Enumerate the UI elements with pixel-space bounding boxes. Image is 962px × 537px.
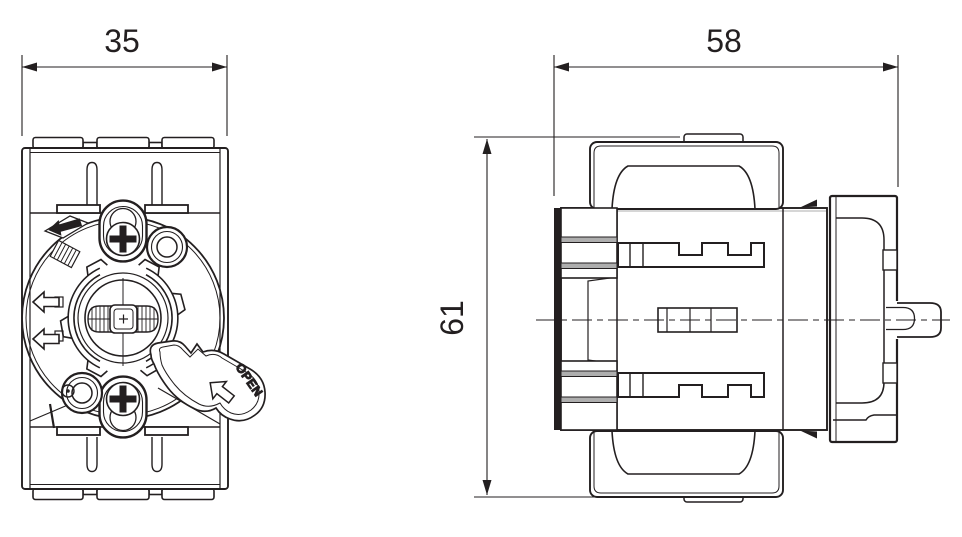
side-width-value: 58 xyxy=(706,23,742,59)
front-view: OPEN 35 xyxy=(22,23,265,500)
dimension-arrow-icon xyxy=(483,480,492,495)
technical-drawing-page: OPEN 35 xyxy=(0,0,962,537)
mount-hole-top-right xyxy=(147,227,187,267)
terminal-block-bottom xyxy=(561,361,617,430)
front-width-value: 35 xyxy=(104,23,140,59)
mount-hole-bottom-left xyxy=(62,373,102,413)
side-bottom-cover xyxy=(590,431,783,502)
dimension-front-width: 35 xyxy=(22,23,227,136)
dimension-arrow-icon xyxy=(554,63,569,72)
terminal-block-top xyxy=(561,208,617,278)
dimension-arrow-icon xyxy=(483,139,492,154)
phillips-screw-top xyxy=(100,201,147,262)
drawing-canvas: OPEN 35 xyxy=(0,0,962,537)
side-top-cover xyxy=(590,134,783,209)
side-front-plate xyxy=(830,196,941,442)
side-view: 58 61 xyxy=(434,23,950,502)
half-arrow-icon xyxy=(800,431,817,439)
side-height-value: 61 xyxy=(434,300,470,336)
dimension-arrow-icon xyxy=(22,63,37,72)
phillips-screw-bottom xyxy=(100,377,147,438)
dimension-arrow-icon xyxy=(212,63,227,72)
dimension-arrow-icon xyxy=(883,63,898,72)
half-arrow-icon xyxy=(800,200,817,208)
